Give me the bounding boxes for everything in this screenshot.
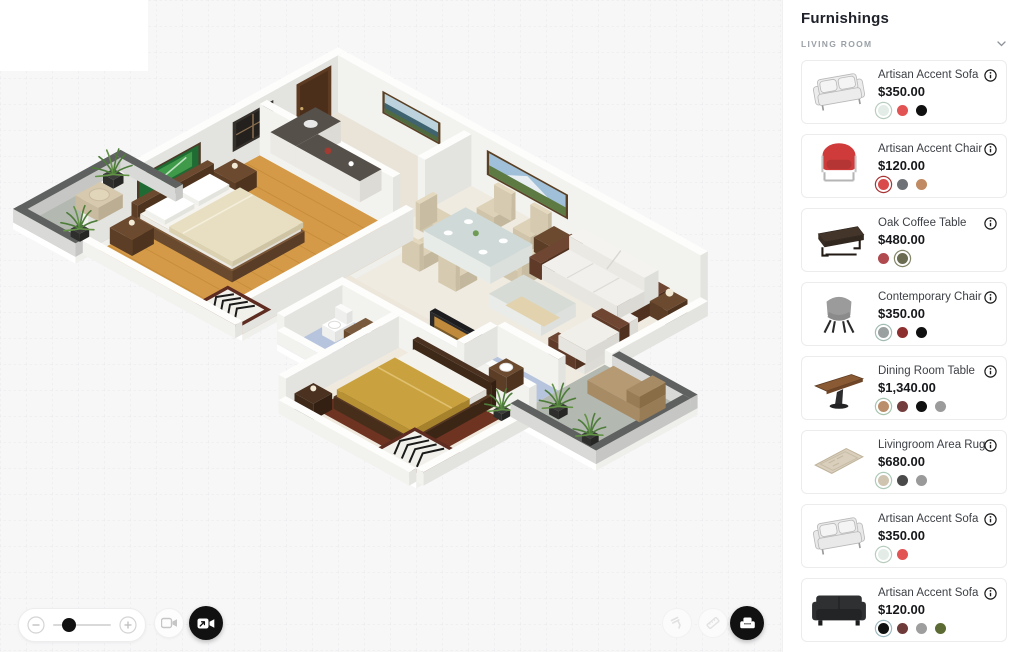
product-card[interactable]: Oak Coffee Table $480.00 xyxy=(801,208,1007,272)
floorplan-3d-view[interactable] xyxy=(0,0,782,652)
color-swatches xyxy=(878,548,978,562)
sidebar-title: Furnishings xyxy=(801,10,1006,27)
color-swatch[interactable] xyxy=(897,327,908,338)
armchair-icon xyxy=(739,616,756,631)
color-swatch[interactable] xyxy=(897,179,908,190)
bottom-toolbar xyxy=(0,606,782,650)
color-swatch[interactable] xyxy=(916,623,927,634)
zoom-in-button[interactable] xyxy=(119,616,137,634)
product-name: Artisan Accent Sofa xyxy=(878,69,978,81)
color-swatch[interactable] xyxy=(897,253,908,264)
color-swatch[interactable] xyxy=(878,475,889,486)
view-2d-button[interactable] xyxy=(154,608,184,638)
color-swatch[interactable] xyxy=(878,253,889,264)
info-icon[interactable] xyxy=(984,587,997,600)
color-swatch[interactable] xyxy=(916,327,927,338)
info-icon[interactable] xyxy=(984,439,997,452)
product-price: $120.00 xyxy=(878,602,978,617)
color-swatch[interactable] xyxy=(878,549,889,560)
color-swatch[interactable] xyxy=(878,401,889,412)
color-swatch[interactable] xyxy=(916,401,927,412)
category-label: LIVING ROOM xyxy=(801,39,872,49)
product-name: Livingroom Area Rug xyxy=(878,439,985,451)
color-swatches xyxy=(878,178,982,192)
color-swatch[interactable] xyxy=(916,179,927,190)
camera-3d-icon xyxy=(197,616,215,631)
info-icon[interactable] xyxy=(984,365,997,378)
info-icon[interactable] xyxy=(984,143,997,156)
color-swatch[interactable] xyxy=(878,327,889,338)
color-swatch[interactable] xyxy=(916,475,927,486)
camera-2d-icon xyxy=(161,616,178,630)
furniture-button[interactable] xyxy=(730,606,764,640)
info-icon[interactable] xyxy=(984,69,997,82)
color-swatch[interactable] xyxy=(916,105,927,116)
color-swatch[interactable] xyxy=(897,623,908,634)
product-name: Oak Coffee Table xyxy=(878,217,966,229)
product-thumbnail xyxy=(808,140,870,192)
color-swatches xyxy=(878,326,982,340)
product-card[interactable]: Artisan Accent Chair $120.00 xyxy=(801,134,1007,198)
product-price: $350.00 xyxy=(878,528,978,543)
product-card[interactable]: Contemporary Chair $350.00 xyxy=(801,282,1007,346)
ruler-icon xyxy=(705,615,721,631)
chevron-down-icon xyxy=(997,41,1006,47)
color-swatch[interactable] xyxy=(935,401,946,412)
product-name: Artisan Accent Sofa xyxy=(878,587,978,599)
color-swatches xyxy=(878,252,966,266)
product-thumbnail xyxy=(808,362,870,414)
zoom-out-button[interactable] xyxy=(27,616,45,634)
product-price: $350.00 xyxy=(878,84,978,99)
color-swatch[interactable] xyxy=(878,623,889,634)
product-name: Dining Room Table xyxy=(878,365,975,377)
color-swatches xyxy=(878,104,978,118)
product-card[interactable]: Artisan Accent Sofa $120.00 xyxy=(801,578,1007,642)
product-price: $1,340.00 xyxy=(878,380,975,395)
color-swatch[interactable] xyxy=(897,475,908,486)
zoom-slider-knob[interactable] xyxy=(62,618,76,632)
color-swatch[interactable] xyxy=(897,549,908,560)
zoom-slider-track[interactable] xyxy=(53,624,111,626)
floorplan-canvas[interactable] xyxy=(0,0,782,652)
color-swatches xyxy=(878,474,985,488)
info-icon[interactable] xyxy=(984,291,997,304)
product-card[interactable]: Dining Room Table $1,340.00 xyxy=(801,356,1007,420)
zoom-bar xyxy=(18,608,146,642)
color-swatches xyxy=(878,622,978,636)
color-swatch[interactable] xyxy=(878,179,889,190)
product-card[interactable]: Livingroom Area Rug $680.00 xyxy=(801,430,1007,494)
color-swatch[interactable] xyxy=(935,623,946,634)
product-card[interactable]: Artisan Accent Sofa $350.00 xyxy=(801,60,1007,124)
furnishings-sidebar: Furnishings LIVING ROOM Artisan Accent S… xyxy=(782,0,1024,652)
color-swatches xyxy=(878,400,975,414)
product-name: Contemporary Chair xyxy=(878,291,982,303)
product-thumbnail xyxy=(808,584,870,636)
product-thumbnail xyxy=(808,66,870,118)
color-swatch[interactable] xyxy=(897,105,908,116)
product-card[interactable]: Artisan Accent Sofa $350.00 xyxy=(801,504,1007,568)
product-thumbnail xyxy=(808,288,870,340)
info-icon[interactable] xyxy=(984,217,997,230)
info-icon[interactable] xyxy=(984,513,997,526)
product-name: Artisan Accent Chair xyxy=(878,143,982,155)
product-thumbnail xyxy=(808,436,870,488)
product-thumbnail xyxy=(808,214,870,266)
color-swatch[interactable] xyxy=(897,401,908,412)
view-3d-button[interactable] xyxy=(189,606,223,640)
product-price: $120.00 xyxy=(878,158,982,173)
color-swatch[interactable] xyxy=(878,105,889,116)
paint-button[interactable] xyxy=(662,608,692,638)
product-name: Artisan Accent Sofa xyxy=(878,513,978,525)
paint-roller-icon xyxy=(669,615,685,631)
product-price: $350.00 xyxy=(878,306,982,321)
product-list: Artisan Accent Sofa $350.00 Artisan Acce… xyxy=(801,60,1006,642)
category-dropdown[interactable]: LIVING ROOM xyxy=(801,39,1006,49)
product-thumbnail xyxy=(808,510,870,562)
measure-button[interactable] xyxy=(698,608,728,638)
product-price: $680.00 xyxy=(878,454,985,469)
product-price: $480.00 xyxy=(878,232,966,247)
